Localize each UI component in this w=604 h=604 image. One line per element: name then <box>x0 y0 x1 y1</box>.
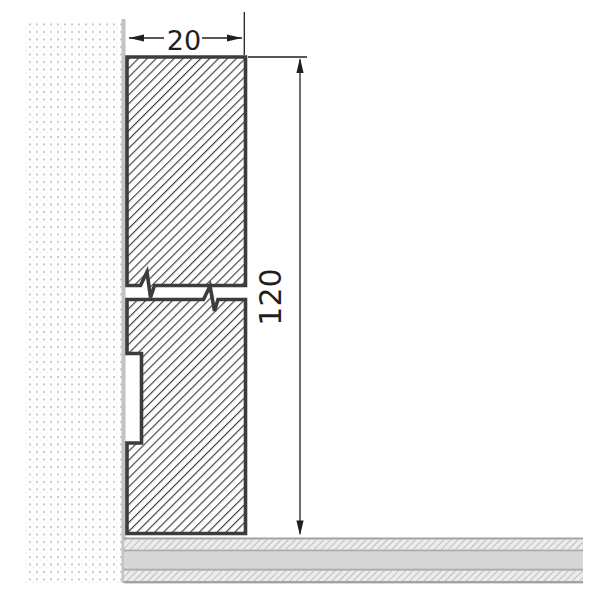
height-dimension-label: 120 <box>253 268 288 325</box>
wall-face-line <box>122 19 126 583</box>
floor-divider-line-bottom <box>124 569 583 571</box>
floor-hatch-band-top <box>124 540 583 550</box>
width-dimension-label: 20 <box>167 25 201 56</box>
floor-solid-core <box>124 552 583 569</box>
floor-top-border <box>124 538 583 540</box>
technical-drawing: 20 120 <box>0 0 604 604</box>
floor-hatch-band-bottom <box>124 571 583 581</box>
floor-bottom-border <box>124 581 583 583</box>
floor-assembly <box>124 538 583 584</box>
floor-divider-line-top <box>124 550 583 552</box>
profile-upper-section <box>127 57 246 298</box>
profile-lower-section <box>127 286 246 534</box>
wall-section <box>24 22 122 583</box>
drawing-canvas: 20 120 <box>0 0 604 604</box>
